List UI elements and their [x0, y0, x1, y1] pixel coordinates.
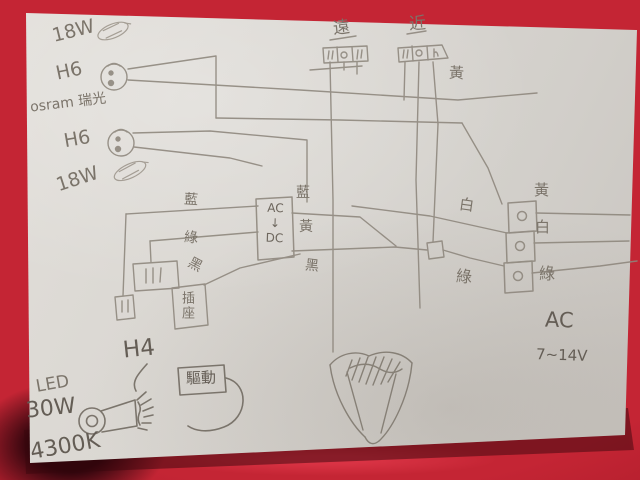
- socket-label: 插座: [180, 291, 193, 321]
- power-type-label: AC: [545, 310, 574, 332]
- wire-black-right-label: 黑: [304, 258, 319, 273]
- conn-white-right-label: 白: [535, 220, 550, 235]
- driver-label: 驅動: [186, 370, 217, 386]
- conn-yellow-right-label: 黃: [534, 183, 549, 198]
- converter-in-label: AC: [267, 201, 284, 216]
- converter-arrow-icon: ↓: [270, 216, 281, 230]
- wire-green-left-label: 綠: [184, 231, 199, 246]
- h4-label: H4: [122, 336, 156, 362]
- conn-green-left-label: 綠: [455, 268, 472, 285]
- near-beam-label: 近: [408, 15, 426, 33]
- lamp-top-model-label: H6: [54, 59, 84, 83]
- conn-white-left-label: 白: [458, 197, 475, 214]
- wire-yellow-top-label: 黃: [449, 66, 465, 82]
- converter-out-label: DC: [265, 231, 283, 246]
- far-beam-label: 遠: [332, 19, 351, 38]
- wire-blue-right-label: 藍: [296, 186, 310, 200]
- led-watt-label: 30W: [25, 395, 77, 422]
- photo-scene: 遠 近 18W H6 osram 瑞光 H6 18W AC ↓ DC 藍 綠 黑…: [0, 0, 640, 480]
- paper-sheet: [0, 0, 640, 480]
- wire-yellow-right-label: 黃: [299, 220, 313, 234]
- conn-green-right-label: 綠: [539, 266, 555, 282]
- power-voltage-label: 7~14V: [536, 347, 588, 364]
- lamp-bottom-model-label: H6: [63, 128, 92, 151]
- converter-label: AC ↓ DC: [257, 200, 293, 245]
- wire-blue-left-label: 藍: [184, 193, 199, 208]
